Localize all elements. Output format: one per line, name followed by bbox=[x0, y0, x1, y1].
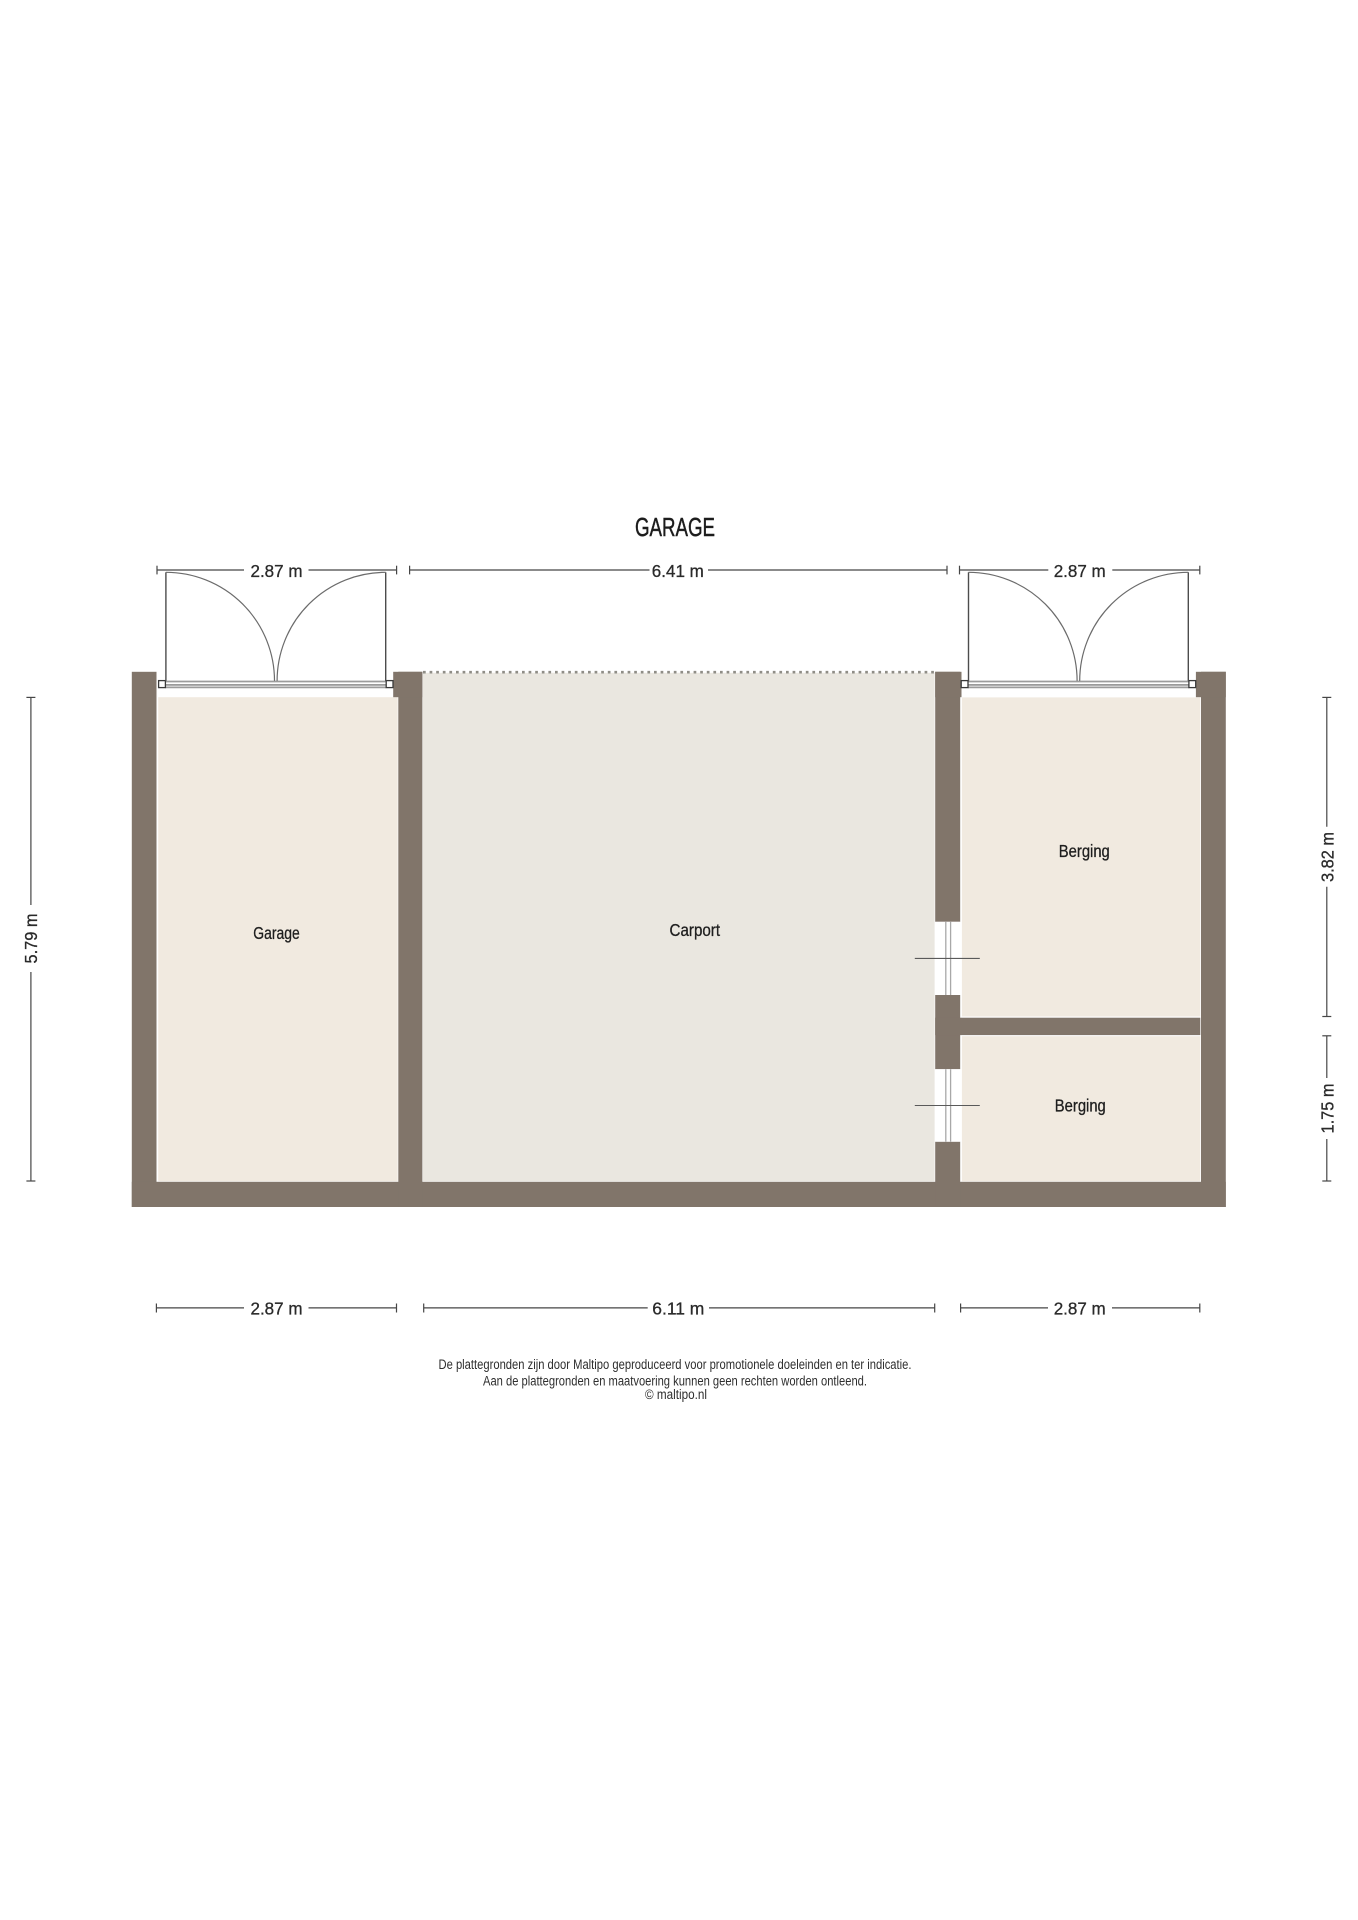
svg-text:© maltipo.nl: © maltipo.nl bbox=[645, 1387, 707, 1402]
svg-text:GARAGE: GARAGE bbox=[635, 512, 715, 542]
svg-text:Berging: Berging bbox=[1059, 841, 1110, 861]
svg-text:Garage: Garage bbox=[253, 923, 300, 943]
svg-text:2.87 m: 2.87 m bbox=[1054, 561, 1106, 581]
svg-text:6.41 m: 6.41 m bbox=[652, 561, 704, 581]
svg-text:5.79 m: 5.79 m bbox=[21, 914, 41, 964]
svg-text:1.75 m: 1.75 m bbox=[1318, 1084, 1338, 1134]
svg-text:2.87 m: 2.87 m bbox=[251, 561, 303, 581]
svg-text:Carport: Carport bbox=[670, 920, 721, 940]
svg-text:2.87 m: 2.87 m bbox=[1054, 1298, 1106, 1318]
svg-text:6.11 m: 6.11 m bbox=[652, 1298, 704, 1318]
svg-text:2.87 m: 2.87 m bbox=[251, 1298, 303, 1318]
svg-text:3.82 m: 3.82 m bbox=[1318, 832, 1338, 882]
svg-text:De plattegronden zijn door Mal: De plattegronden zijn door Maltipo gepro… bbox=[439, 1357, 912, 1372]
svg-text:Berging: Berging bbox=[1055, 1096, 1106, 1116]
